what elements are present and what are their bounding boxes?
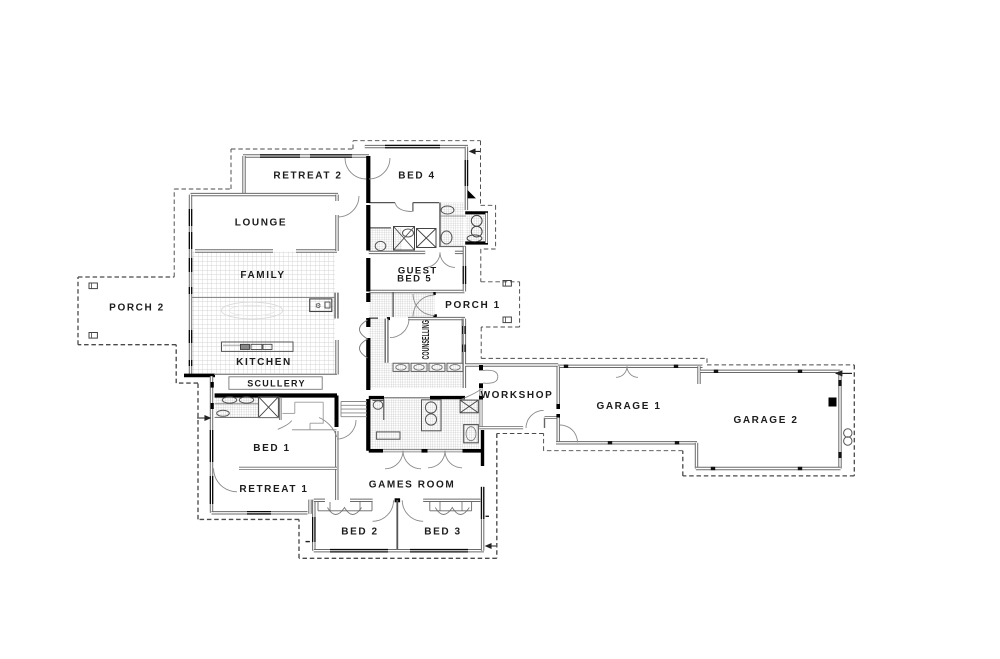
svg-text:KITCHEN: KITCHEN — [236, 357, 292, 368]
svg-text:PORCH 2: PORCH 2 — [109, 303, 165, 314]
svg-text:PORCH 1: PORCH 1 — [445, 300, 501, 311]
svg-text:GAMES ROOM: GAMES ROOM — [369, 480, 456, 491]
svg-text:BED 1: BED 1 — [253, 443, 290, 454]
svg-text:GARAGE 1: GARAGE 1 — [596, 401, 661, 412]
svg-text:FAMILY: FAMILY — [240, 270, 285, 281]
svg-text:SCULLERY: SCULLERY — [247, 379, 306, 389]
svg-text:COUNSELLING: COUNSELLING — [421, 320, 432, 360]
svg-text:WORKSHOP: WORKSHOP — [481, 390, 554, 401]
svg-text:RETREAT 1: RETREAT 1 — [239, 484, 308, 495]
svg-text:BED 3: BED 3 — [424, 527, 461, 538]
svg-text:BED 5: BED 5 — [397, 274, 432, 285]
svg-text:BED 4: BED 4 — [398, 171, 435, 182]
svg-text:BED 2: BED 2 — [341, 527, 378, 538]
svg-text:GARAGE 2: GARAGE 2 — [733, 415, 798, 426]
svg-text:RETREAT 2: RETREAT 2 — [273, 171, 342, 182]
svg-text:⚙: ⚙ — [315, 302, 321, 310]
svg-text:LOUNGE: LOUNGE — [235, 218, 287, 229]
